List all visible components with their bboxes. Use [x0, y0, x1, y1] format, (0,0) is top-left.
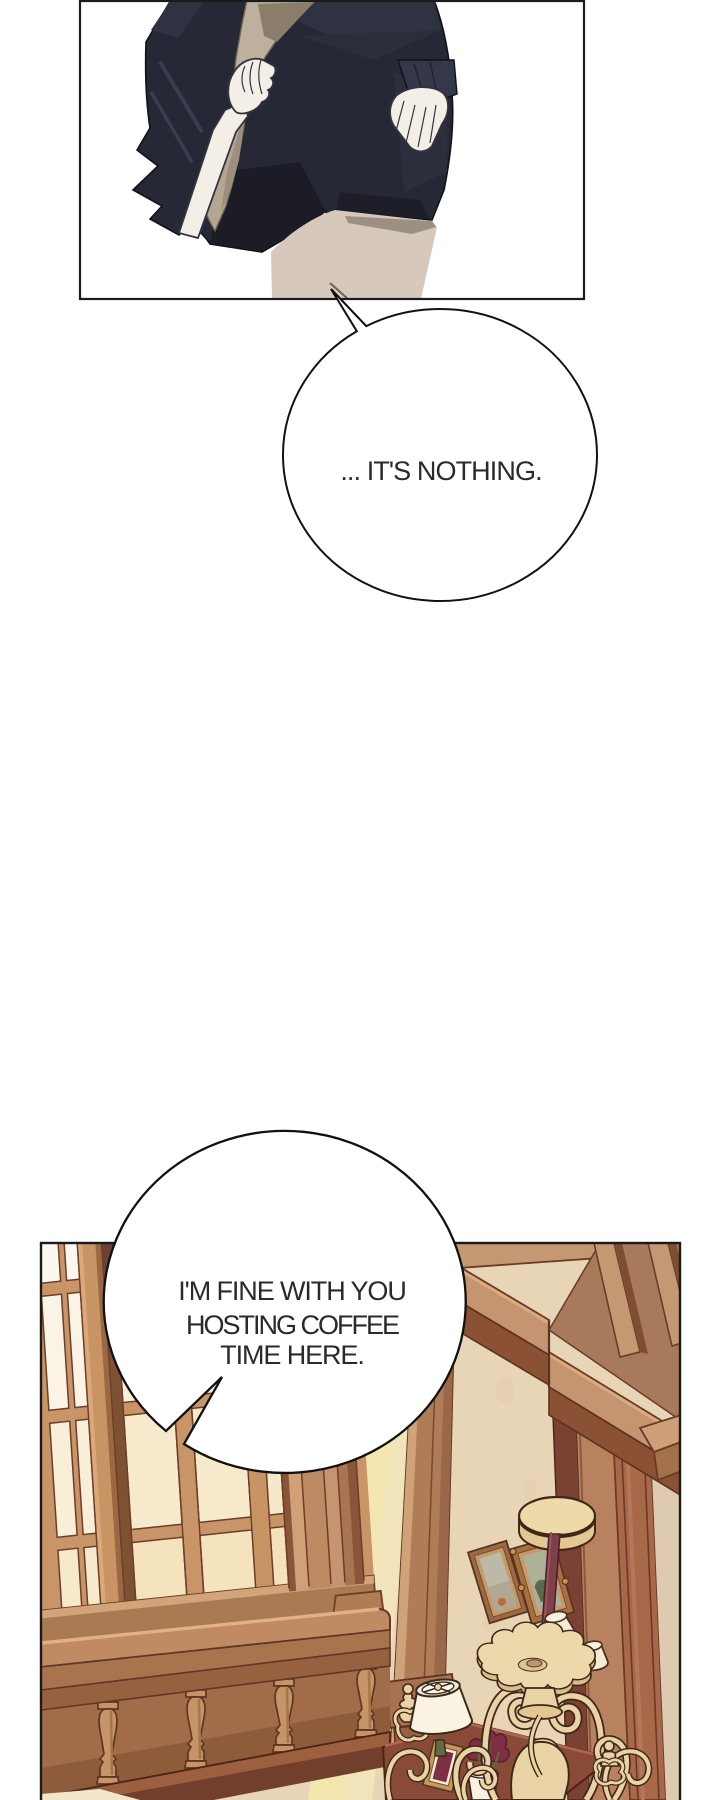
svg-text:I'M FINE WITH YOU: I'M FINE WITH YOU	[178, 1276, 405, 1306]
svg-text:HOSTING COFFEE: HOSTING COFFEE	[186, 1310, 399, 1340]
svg-text:TIME HERE.: TIME HERE.	[220, 1340, 364, 1370]
svg-text:... IT'S NOTHING.: ... IT'S NOTHING.	[340, 456, 541, 486]
